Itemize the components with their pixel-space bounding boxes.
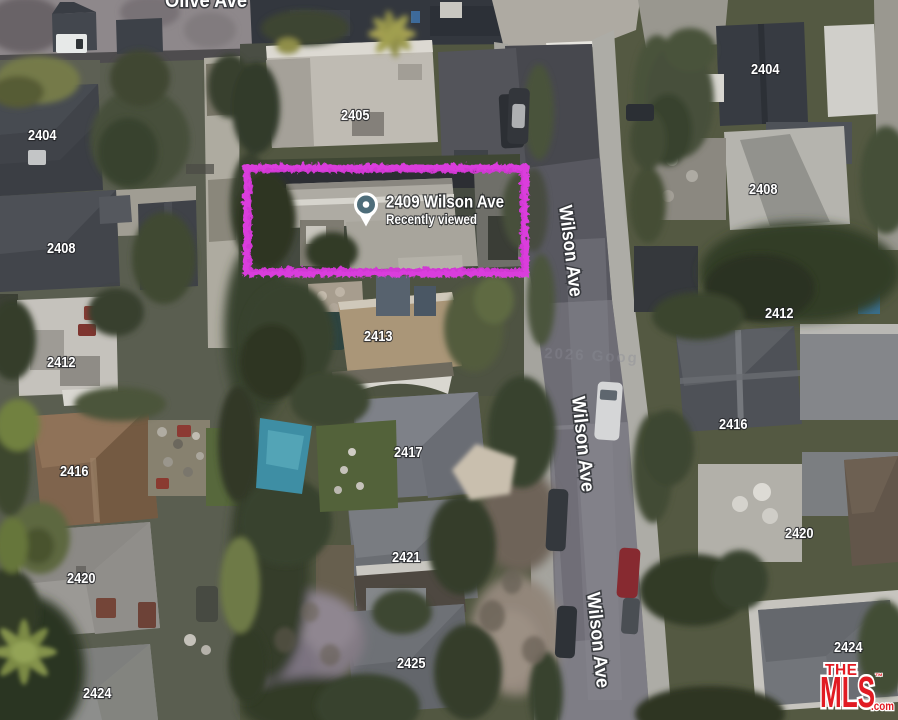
svg-text:2416: 2416 bbox=[719, 416, 748, 433]
svg-text:2424: 2424 bbox=[83, 685, 112, 702]
svg-text:2404: 2404 bbox=[28, 127, 57, 144]
svg-text:2412: 2412 bbox=[47, 354, 76, 371]
svg-text:2416: 2416 bbox=[60, 463, 89, 480]
svg-text:Olive Ave: Olive Ave bbox=[165, 0, 247, 12]
svg-text:2413: 2413 bbox=[364, 328, 393, 345]
svg-text:2409 Wilson Ave: 2409 Wilson Ave bbox=[386, 192, 504, 212]
svg-text:2408: 2408 bbox=[749, 181, 778, 198]
svg-text:2420: 2420 bbox=[67, 570, 96, 587]
svg-text:2405: 2405 bbox=[341, 107, 370, 124]
svg-text:™: ™ bbox=[875, 672, 883, 681]
svg-text:2404: 2404 bbox=[751, 61, 780, 78]
svg-text:.com: .com bbox=[871, 701, 894, 713]
svg-text:2425: 2425 bbox=[397, 655, 426, 672]
svg-text:2408: 2408 bbox=[47, 240, 76, 257]
svg-text:2424: 2424 bbox=[834, 639, 863, 656]
svg-text:MLS: MLS bbox=[820, 668, 875, 717]
svg-text:2420: 2420 bbox=[785, 525, 814, 542]
svg-text:Recently viewed: Recently viewed bbox=[386, 211, 477, 227]
svg-text:2421: 2421 bbox=[392, 549, 421, 566]
svg-text:2417: 2417 bbox=[394, 444, 423, 461]
svg-text:2412: 2412 bbox=[765, 305, 794, 322]
